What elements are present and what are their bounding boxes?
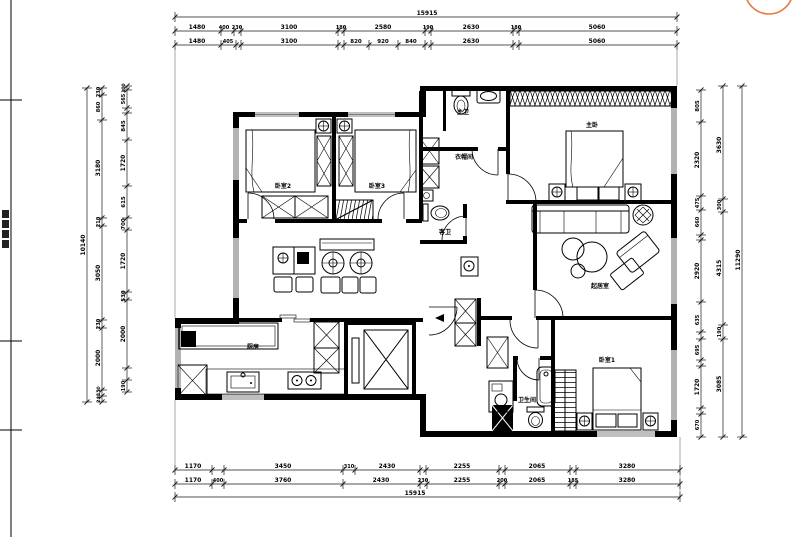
svg-text:3760: 3760 — [275, 477, 292, 484]
svg-text:190: 190 — [423, 25, 434, 31]
room-label-master-bath: 主卫 — [457, 108, 469, 116]
svg-text:3085: 3085 — [716, 376, 723, 393]
orange-circle-marker — [745, 0, 793, 14]
svg-text:3050: 3050 — [95, 265, 102, 282]
floor-plan-page: 1591514804002303100180258019026301805060… — [0, 0, 795, 537]
svg-text:2580: 2580 — [375, 24, 392, 31]
room-label-bedroom-3: 卧室3 — [369, 182, 385, 190]
svg-text:10140: 10140 — [80, 235, 87, 256]
furniture-dining — [273, 239, 376, 293]
svg-text:2920: 2920 — [694, 263, 701, 280]
svg-text:2000: 2000 — [120, 326, 127, 343]
windows — [175, 108, 677, 437]
svg-text:3100: 3100 — [281, 24, 298, 31]
svg-text:2065: 2065 — [529, 463, 546, 470]
svg-text:3100: 3100 — [281, 38, 298, 45]
svg-text:845: 845 — [121, 120, 127, 132]
svg-text:3450: 3450 — [275, 463, 292, 470]
svg-text:920: 920 — [377, 39, 389, 45]
furniture-kitchen — [178, 323, 346, 396]
svg-text:185: 185 — [568, 478, 579, 484]
svg-text:820: 820 — [350, 39, 362, 45]
doors — [248, 149, 563, 380]
svg-text:670: 670 — [695, 419, 701, 430]
svg-text:3630: 3630 — [716, 137, 723, 154]
dimension-annotations: 1591514804002303100180258019026301805060… — [80, 10, 747, 502]
svg-text:5060: 5060 — [589, 38, 606, 45]
svg-text:100: 100 — [121, 83, 127, 92]
room-label-bedroom-2: 卧室2 — [275, 182, 291, 190]
svg-text:2430: 2430 — [373, 477, 390, 484]
furniture-bedrooms-top — [246, 119, 416, 220]
svg-text:230: 230 — [96, 86, 102, 97]
svg-text:3280: 3280 — [619, 463, 636, 470]
svg-text:190: 190 — [717, 326, 723, 337]
svg-text:840: 840 — [405, 39, 417, 45]
furniture-master-bedroom — [510, 91, 672, 201]
svg-text:180: 180 — [336, 25, 347, 31]
room-label-master-bedroom: 主卧 — [586, 121, 598, 129]
svg-text:700: 700 — [121, 218, 127, 230]
svg-text:1720: 1720 — [120, 155, 127, 172]
svg-text:635: 635 — [695, 314, 701, 325]
svg-text:615: 615 — [121, 196, 127, 208]
svg-text:2000: 2000 — [95, 350, 102, 367]
svg-text:1720: 1720 — [120, 253, 127, 270]
svg-text:210: 210 — [96, 216, 102, 227]
furniture-living-room — [532, 205, 660, 290]
svg-text:530: 530 — [121, 290, 127, 302]
svg-text:1480: 1480 — [189, 38, 206, 45]
svg-text:660: 660 — [695, 216, 701, 227]
svg-text:2630: 2630 — [463, 24, 480, 31]
svg-text:240: 240 — [96, 393, 102, 402]
svg-text:230: 230 — [232, 25, 243, 31]
svg-text:1480: 1480 — [189, 24, 206, 31]
svg-text:230: 230 — [96, 318, 102, 329]
bedside-lamp-icon — [316, 119, 331, 133]
illegible-text-block — [2, 210, 9, 248]
svg-text:300: 300 — [717, 199, 723, 210]
svg-text:405: 405 — [223, 39, 234, 45]
room-label-guest-bath: 客卫 — [438, 228, 451, 236]
svg-text:400: 400 — [219, 25, 230, 31]
svg-text:3180: 3180 — [95, 160, 102, 177]
svg-text:2430: 2430 — [379, 463, 396, 470]
svg-text:180: 180 — [511, 25, 522, 31]
svg-text:230: 230 — [418, 478, 429, 484]
svg-text:2255: 2255 — [454, 463, 471, 470]
exterior-walls — [175, 86, 677, 437]
svg-text:805: 805 — [695, 100, 701, 112]
bath-fixtures-top — [420, 89, 500, 276]
svg-text:565: 565 — [121, 93, 127, 104]
bedside-lamp-icon — [337, 119, 352, 133]
svg-text:1720: 1720 — [694, 379, 701, 396]
floor-plan-drawing: 1591514804002303100180258019026301805060… — [0, 0, 795, 537]
svg-text:2630: 2630 — [463, 38, 480, 45]
room-label-kitchen: 厨房 — [247, 343, 259, 351]
svg-text:190: 190 — [121, 380, 127, 391]
room-label-cloakroom: 衣帽间 — [455, 153, 473, 161]
svg-text:5060: 5060 — [589, 24, 606, 31]
svg-text:310: 310 — [344, 464, 355, 470]
svg-text:2320: 2320 — [694, 152, 701, 169]
entry-arrow — [435, 314, 444, 322]
sheet-border — [0, 0, 22, 537]
svg-text:3280: 3280 — [619, 477, 636, 484]
svg-text:400: 400 — [213, 478, 224, 484]
svg-text:15915: 15915 — [417, 10, 438, 17]
svg-text:4315: 4315 — [716, 260, 723, 277]
svg-text:2065: 2065 — [529, 477, 546, 484]
svg-text:1170: 1170 — [185, 463, 202, 470]
svg-text:15915: 15915 — [405, 490, 426, 497]
elevator-shaft — [346, 323, 414, 396]
svg-text:695: 695 — [695, 344, 701, 355]
svg-text:200: 200 — [497, 478, 508, 484]
svg-text:475: 475 — [695, 197, 701, 208]
svg-text:2255: 2255 — [454, 477, 471, 484]
room-label-bedroom-1: 卧室1 — [599, 356, 615, 364]
svg-text:860: 860 — [96, 101, 102, 112]
svg-text:1170: 1170 — [185, 477, 202, 484]
room-label-living-room: 起居室 — [590, 282, 609, 290]
svg-text:11290: 11290 — [735, 250, 742, 271]
room-label-bathroom: 卫生间 — [518, 396, 536, 404]
furniture-bedroom-1 — [554, 368, 658, 431]
